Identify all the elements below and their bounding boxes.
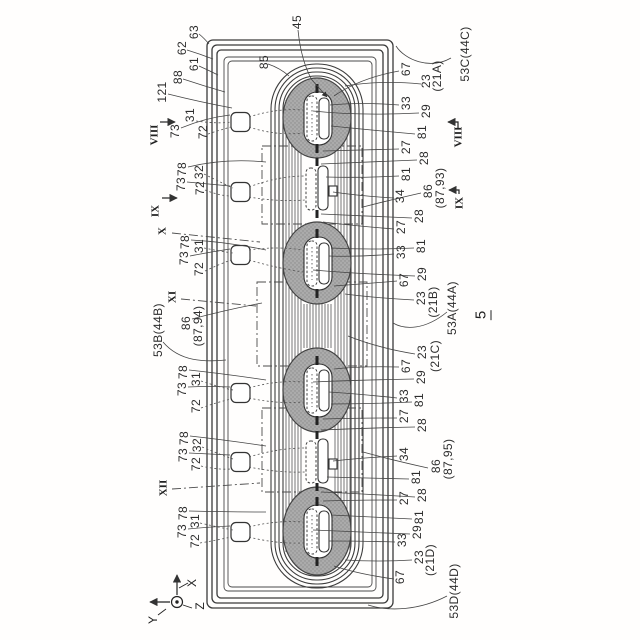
ref-label-81: 81 [400, 167, 412, 181]
section-marker-XI-left: XI [168, 291, 179, 303]
ref-label-31: 31 [189, 514, 201, 528]
ref-label-121: 121 [156, 81, 168, 102]
ref-label-31: 31 [184, 108, 196, 122]
ref-label-33: 33 [400, 96, 412, 110]
ref-label-81: 81 [413, 510, 425, 524]
ref-label-73: 73 [178, 251, 190, 265]
ref-label-53D44D: 53D(44D) [448, 563, 460, 618]
ref-label-29: 29 [420, 104, 432, 118]
ref-label-67: 67 [398, 273, 410, 287]
section-marker-IX-right: IX [455, 197, 466, 209]
section-marker-VIII-right: VIII [454, 127, 465, 148]
ref-label-72: 72 [194, 181, 206, 195]
ref-label-33: 33 [396, 533, 408, 547]
ref-label-81: 81 [415, 239, 427, 253]
axis-label-y: Y [147, 616, 159, 624]
ref-label-72: 72 [190, 399, 202, 413]
ref-label-31: 31 [193, 239, 205, 253]
ref-label-33: 33 [395, 245, 407, 259]
ref-label-78: 78 [176, 162, 188, 176]
ref-label-53A44A: 53A(44A) [446, 281, 458, 335]
ref-label-73: 73 [177, 448, 189, 462]
ref-label-72: 72 [193, 262, 205, 276]
ref-label-21D: (21D) [424, 544, 436, 576]
ref-label-67: 67 [400, 359, 412, 373]
ref-label-28: 28 [416, 488, 428, 502]
ref-label-62: 62 [176, 41, 188, 55]
ref-label-21C: (21C) [429, 340, 441, 372]
ref-label-29: 29 [415, 370, 427, 384]
ref-label-34: 34 [398, 447, 410, 461]
ref-label-27: 27 [395, 220, 407, 234]
ref-label-72: 72 [197, 125, 209, 139]
ref-label-27: 27 [398, 491, 410, 505]
ref-label-61: 61 [188, 57, 200, 71]
ref-label-31: 31 [190, 372, 202, 386]
ref-label-81: 81 [410, 470, 422, 484]
ref-label-72: 72 [190, 457, 202, 471]
figure-number: 5 [474, 310, 489, 320]
ref-label-21A: (21A) [431, 60, 443, 91]
ref-label-23: 23 [416, 345, 428, 359]
ref-label-27: 27 [398, 409, 410, 423]
ref-label-29: 29 [411, 525, 423, 539]
ref-label-88: 88 [172, 70, 184, 84]
ref-label-78: 78 [178, 431, 190, 445]
ref-label-28: 28 [418, 151, 430, 165]
ref-label-73: 73 [175, 177, 187, 191]
ref-label-21B: (21B) [427, 286, 439, 317]
section-marker-VIII-left: VIII [150, 125, 161, 146]
ref-label-85: 85 [258, 55, 270, 69]
axis-label-x: X [186, 579, 198, 587]
ref-label-53C44C: 53C(44C) [459, 26, 471, 81]
label-layer: 5 X Y Z 45636261881218573317278733272787… [0, 0, 640, 640]
ref-label-33: 33 [398, 389, 410, 403]
section-marker-X-left: X [158, 227, 169, 235]
ref-label-29: 29 [416, 267, 428, 281]
section-marker-IX-left: IX [151, 205, 162, 217]
ref-label-73: 73 [169, 124, 181, 138]
ref-label-28: 28 [413, 209, 425, 223]
ref-label-81: 81 [416, 125, 428, 139]
ref-label-45: 45 [291, 15, 303, 29]
ref-label-8793: (87,93) [434, 168, 446, 209]
ref-label-67: 67 [394, 570, 406, 584]
ref-label-72: 72 [189, 534, 201, 548]
ref-label-73: 73 [176, 524, 188, 538]
ref-label-32: 32 [193, 165, 205, 179]
ref-label-32: 32 [191, 438, 203, 452]
ref-label-8795: (87,95) [442, 439, 454, 480]
ref-label-34: 34 [394, 189, 406, 203]
ref-label-78: 78 [179, 235, 191, 249]
patent-figure-page: 5 X Y Z 45636261881218573317278733272787… [0, 0, 640, 640]
ref-label-73: 73 [176, 382, 188, 396]
ref-label-8794: (87,94) [192, 306, 204, 347]
section-marker-XII-left: XII [159, 480, 170, 497]
axis-label-z: Z [194, 602, 206, 609]
ref-label-78: 78 [177, 365, 189, 379]
ref-label-27: 27 [400, 140, 412, 154]
ref-label-53B44B: 53B(44B) [152, 303, 164, 357]
ref-label-28: 28 [416, 418, 428, 432]
ref-label-81: 81 [413, 393, 425, 407]
ref-label-63: 63 [188, 25, 200, 39]
ref-label-67: 67 [400, 62, 412, 76]
